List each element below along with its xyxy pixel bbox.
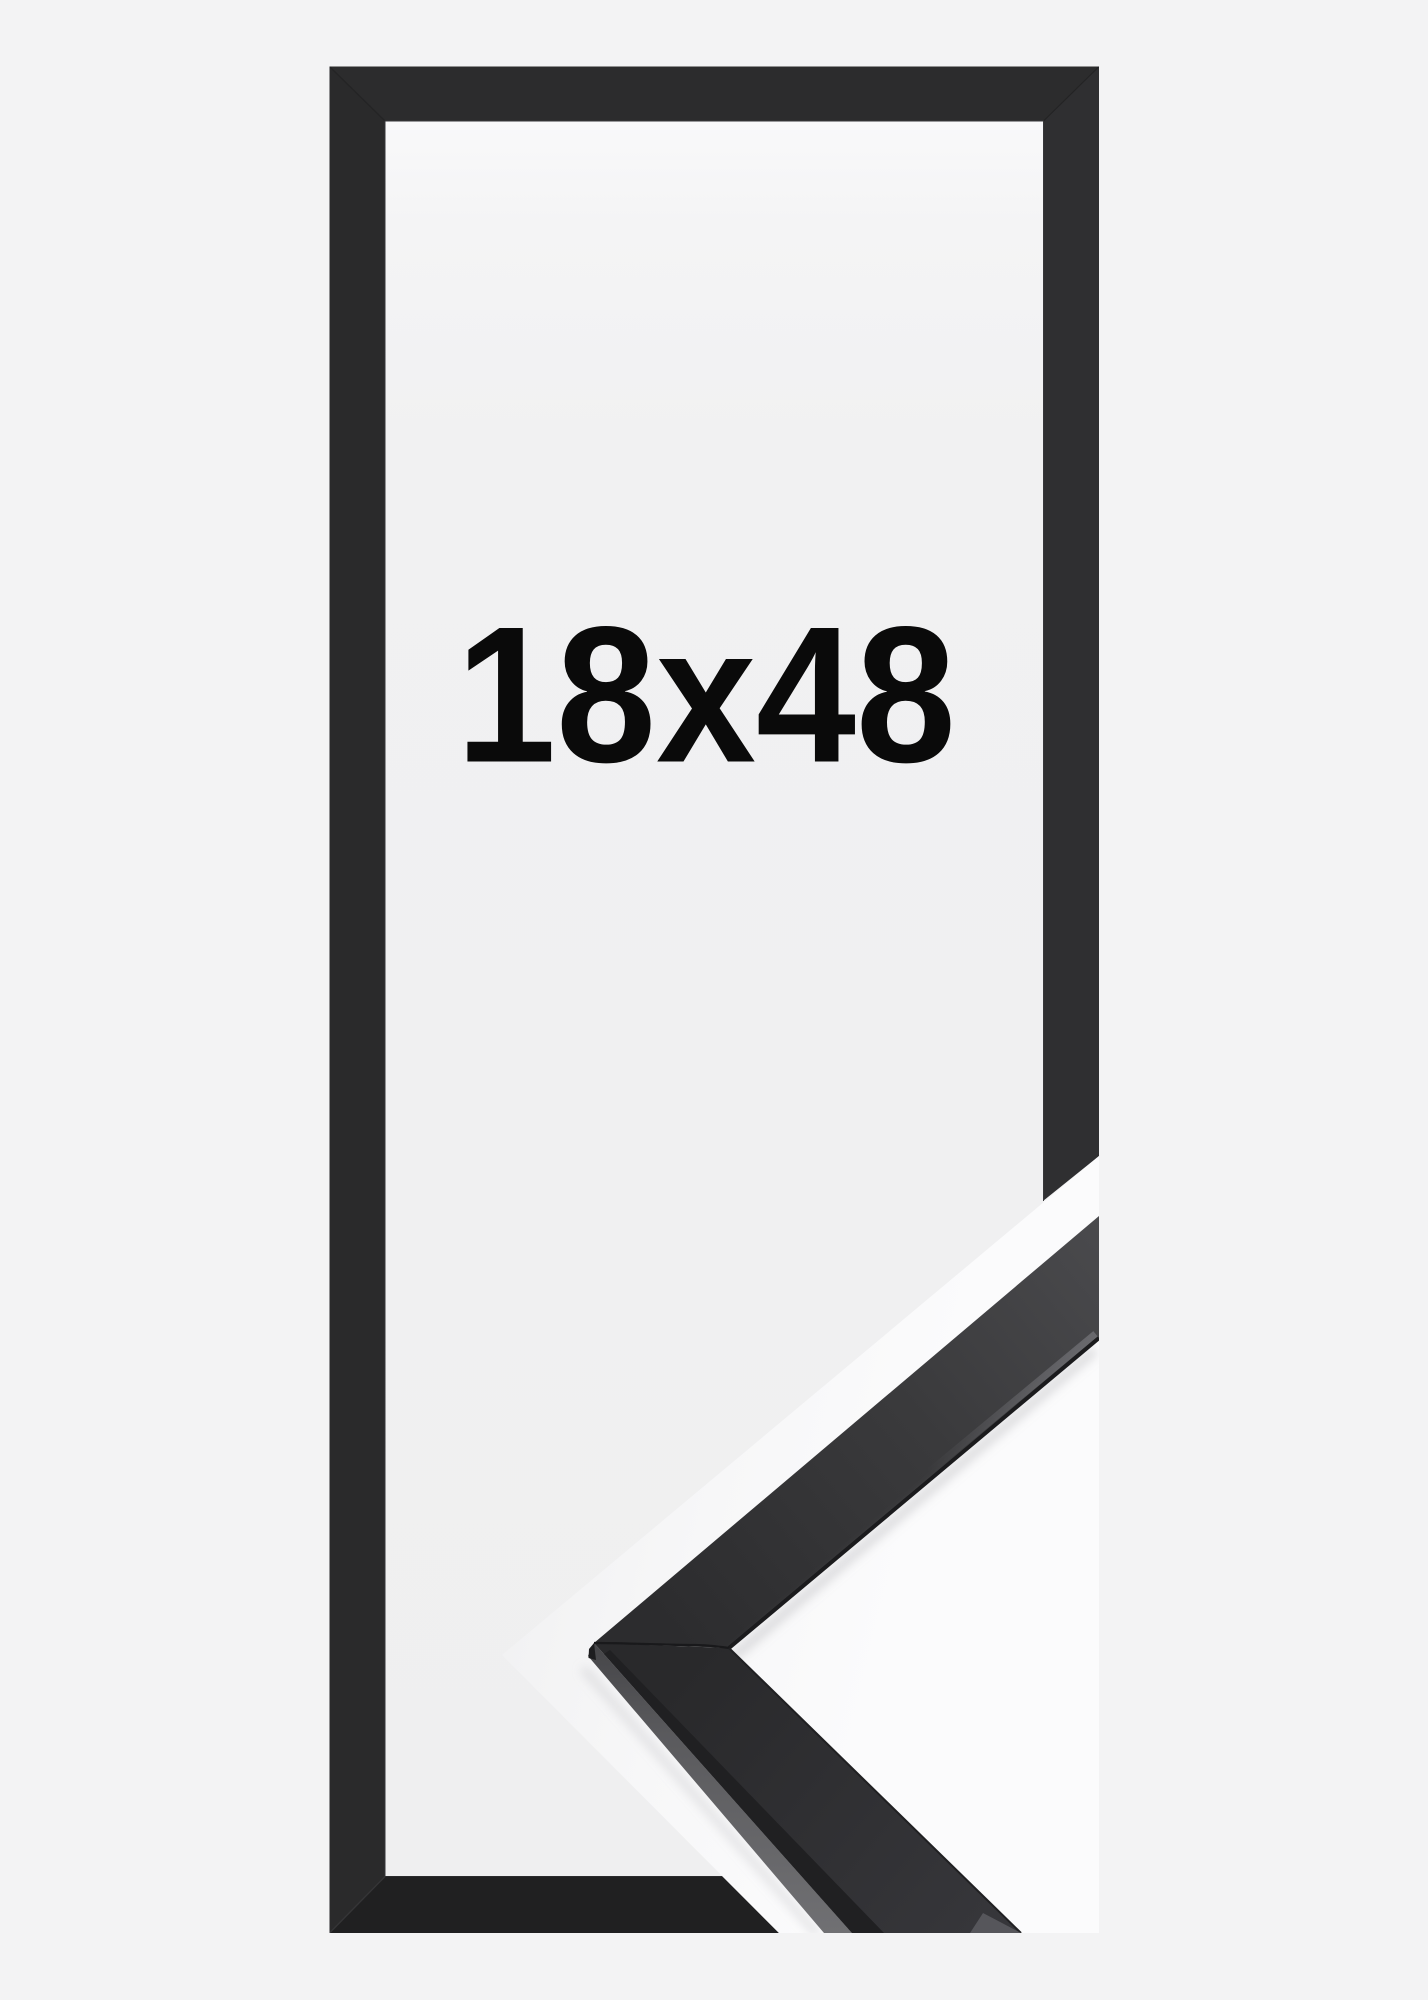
svg-text:18x48: 18x48 [456, 586, 956, 803]
